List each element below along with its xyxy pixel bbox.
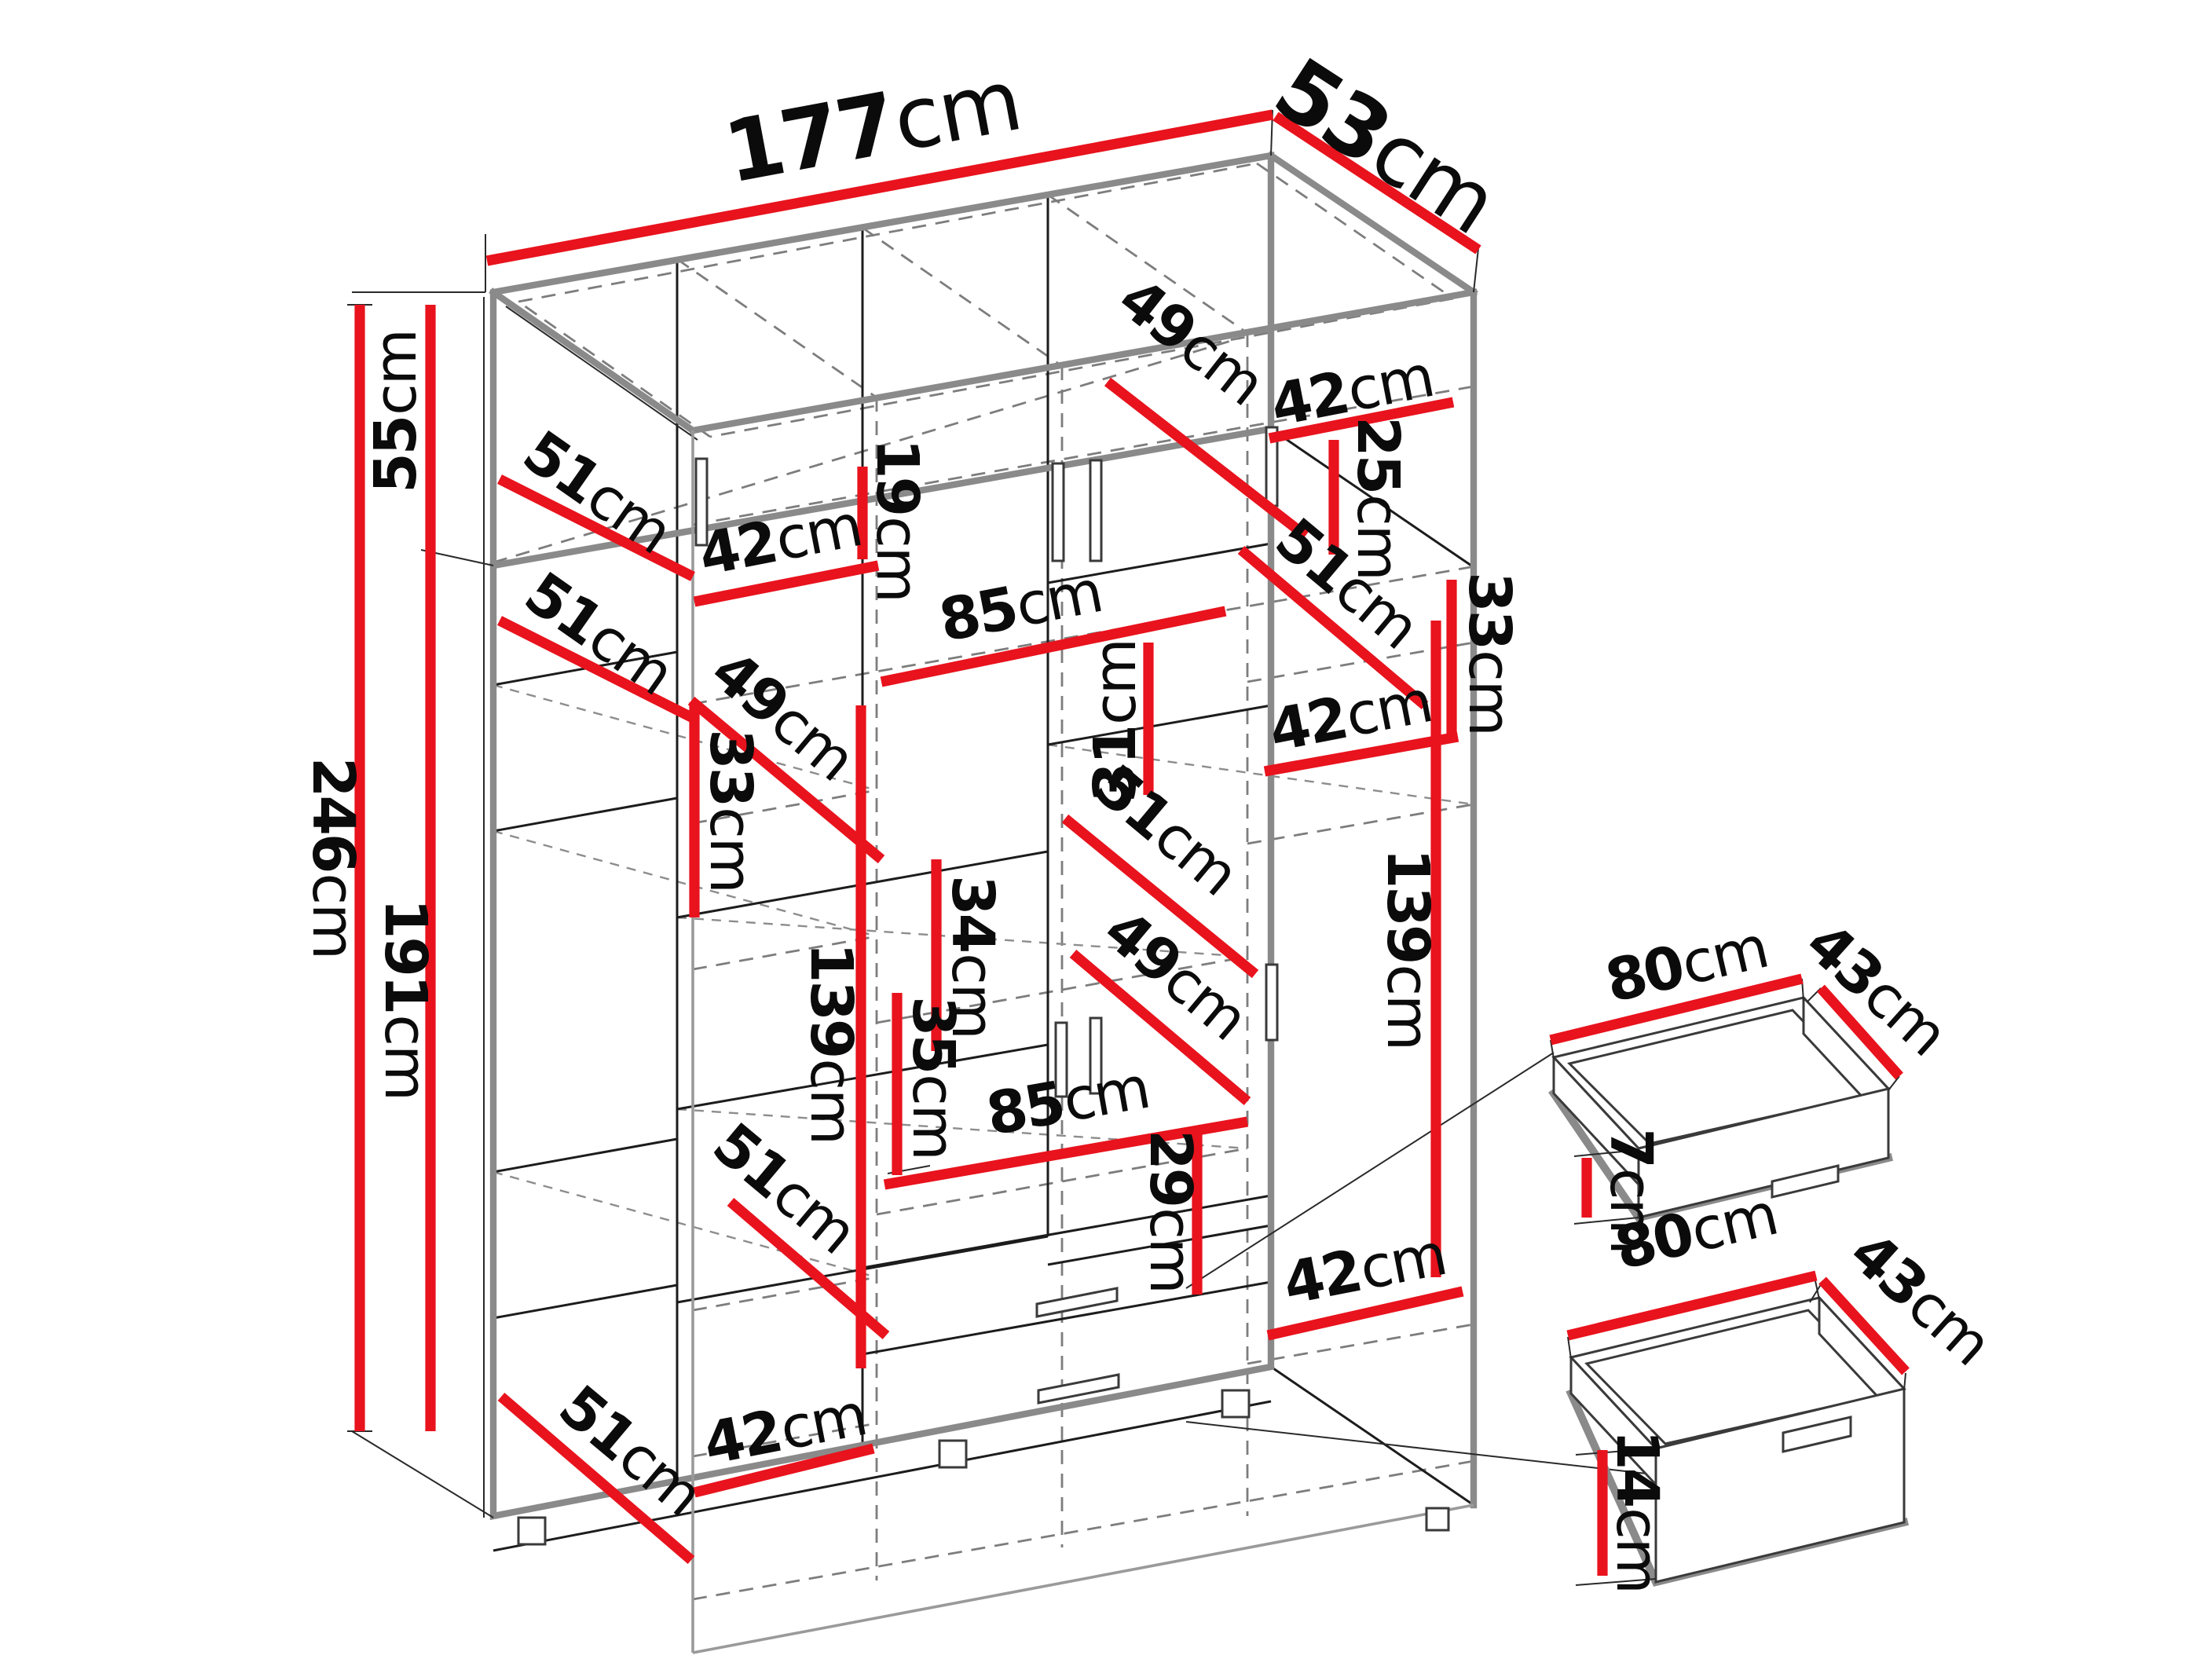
drawer-detail-1 — [1186, 979, 1899, 1288]
dim-label-29-19: 29cm — [1137, 1130, 1204, 1293]
dim-label-55-28: 55cm — [362, 330, 430, 493]
dim-label-49-18: 49cm — [1092, 896, 1260, 1053]
handle-main-right-door — [1266, 965, 1277, 1040]
dim-label-191-30: 191cm — [372, 899, 439, 1100]
handle-top-mid-door-a — [1053, 463, 1064, 561]
wardrobe-dimension-diagram: 177cm53cm49cm42cm25cm42cm19cm85cm51cm51c… — [0, 0, 2212, 1659]
dim-label-51-13: 51cm — [1082, 752, 1251, 908]
dim-label-139-16: 139cm — [797, 943, 865, 1144]
dim-label-42-24: 42cm — [698, 1381, 871, 1478]
dim-label-85-17: 85cm — [981, 1053, 1154, 1148]
dim-label-139-20: 139cm — [1374, 848, 1441, 1049]
dim-label-53-1: 53cm — [1258, 39, 1513, 253]
dim-label-80-32: 80cm — [1599, 913, 1774, 1016]
dim-label-35-15: 35cm — [899, 996, 967, 1159]
dim-label-19-6: 19cm — [863, 438, 931, 602]
dim-label-177-0: 177cm — [717, 51, 1028, 203]
dim-label-33-23: 33cm — [1456, 572, 1523, 735]
dim-label-51-9: 51cm — [513, 559, 686, 709]
dim-label-33-11: 33cm — [697, 729, 764, 892]
handle-top-mid-door-b — [1090, 460, 1101, 561]
dim-label-14-36: 14cm — [1603, 1430, 1671, 1593]
dim-label-246-29: 246cm — [299, 757, 367, 958]
diagram-page: 177cm53cm49cm42cm25cm42cm19cm85cm51cm51c… — [0, 0, 2212, 1659]
top-left-depth-edge — [493, 292, 693, 430]
wardrobe-drawer2-line — [862, 1282, 1271, 1354]
